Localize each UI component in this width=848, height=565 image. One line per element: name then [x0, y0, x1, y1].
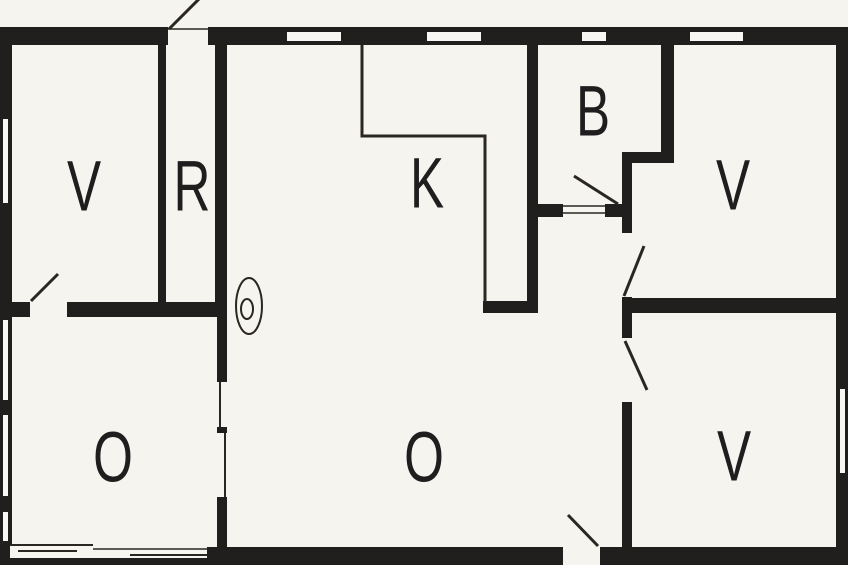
v-bottom-right-door-swing-line	[625, 341, 647, 390]
room-label-k: K	[410, 149, 444, 220]
room-label-o-living: O	[404, 423, 444, 494]
room-label-v-top-right: V	[716, 151, 750, 222]
doorbell-symbol-inner	[241, 299, 253, 319]
doorbell-symbol	[236, 278, 262, 334]
front-door-swing-line	[169, 0, 201, 29]
back-door-swing-line	[568, 515, 598, 546]
floor-plan: V R K B V O O V	[0, 0, 848, 565]
v-top-right-door-swing-line	[624, 246, 644, 296]
bath-door-swing-line	[574, 176, 618, 204]
room-label-b: B	[576, 77, 610, 148]
vo-door-swing-line	[31, 274, 58, 301]
room-label-v-bottom-right: V	[717, 422, 751, 493]
room-label-r: R	[174, 152, 211, 223]
room-label-o-bottom-left: O	[93, 423, 133, 494]
room-label-v-top-left: V	[67, 152, 101, 223]
